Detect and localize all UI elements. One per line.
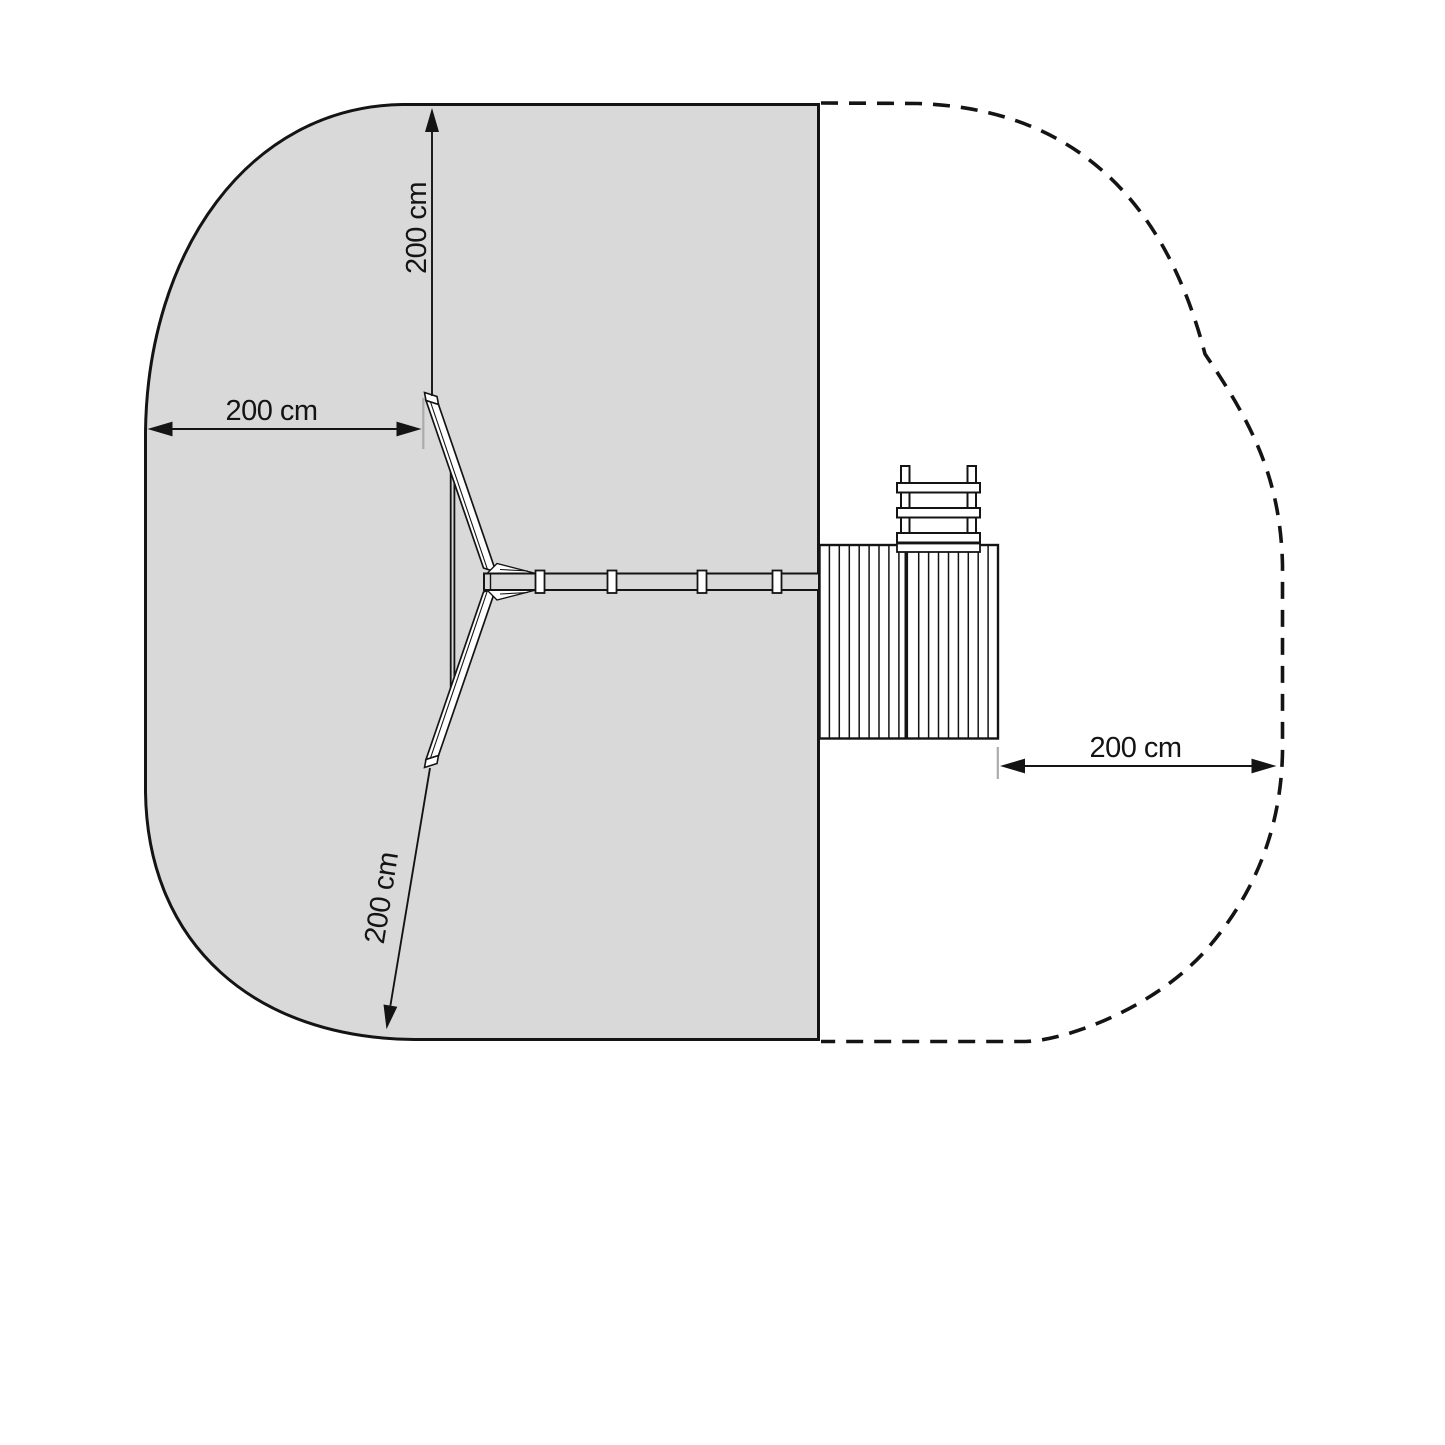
swing-beam (484, 574, 819, 591)
beam-clamp (536, 571, 545, 594)
diagram-svg: 200 cm 200 cm 200 cm 200 cm (0, 0, 1445, 1445)
safety-zone (146, 103, 1283, 1042)
platform-deck (820, 545, 999, 739)
beam-clamp (608, 571, 617, 594)
platform-ladder (897, 466, 980, 552)
dimension-right-label: 200 cm (1089, 732, 1181, 764)
beam-clamp (773, 571, 782, 594)
ladder-rung (897, 483, 980, 493)
dimension-right: 200 cm (998, 732, 1277, 779)
platform-outline (820, 545, 999, 739)
safety-zone-shaded (146, 105, 819, 1040)
ladder-foot-plate (897, 544, 980, 553)
dimension-left-label: 200 cm (225, 395, 317, 427)
beam-clamp (698, 571, 707, 594)
ladder-rung (897, 533, 980, 543)
dimension-right-arrowhead-right (1252, 759, 1277, 774)
ladder-rung (897, 508, 980, 518)
dimension-right-arrowhead-left (1000, 759, 1025, 774)
dimension-top-label: 200 cm (401, 182, 433, 274)
safety-zone-diagram: 200 cm 200 cm 200 cm 200 cm (0, 0, 1445, 1445)
